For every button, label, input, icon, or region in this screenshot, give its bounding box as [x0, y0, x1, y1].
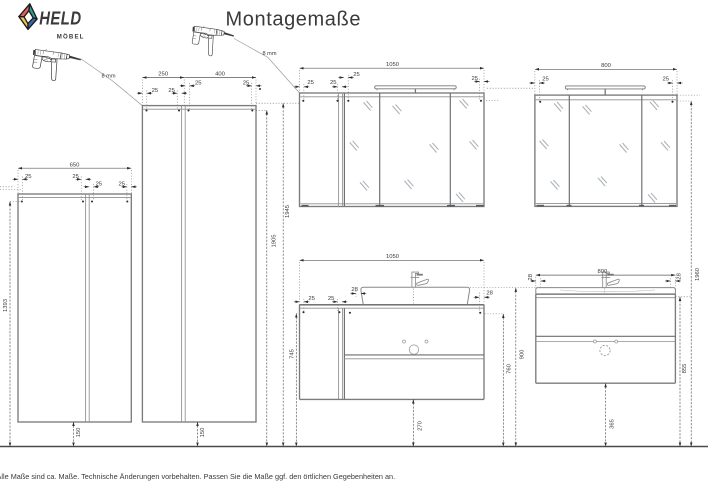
svg-text:25: 25 — [472, 76, 479, 82]
svg-text:25: 25 — [307, 80, 314, 86]
svg-text:1393: 1393 — [3, 298, 9, 312]
svg-text:28: 28 — [677, 272, 683, 279]
svg-text:650: 650 — [70, 162, 81, 168]
svg-text:1945: 1945 — [285, 204, 291, 218]
svg-text:25: 25 — [353, 72, 360, 78]
svg-text:760: 760 — [506, 363, 512, 374]
svg-text:1050: 1050 — [386, 62, 400, 68]
svg-text:1050: 1050 — [386, 254, 400, 260]
svg-text:150: 150 — [76, 427, 82, 438]
svg-text:MÖBEL: MÖBEL — [57, 33, 85, 40]
svg-text:1960: 1960 — [695, 267, 701, 281]
svg-text:365: 365 — [609, 418, 615, 429]
svg-text:25: 25 — [328, 296, 335, 302]
svg-text:25: 25 — [168, 88, 175, 94]
svg-text:25: 25 — [330, 80, 337, 86]
svg-text:250: 250 — [158, 72, 169, 78]
svg-text:25: 25 — [195, 80, 202, 86]
svg-text:25: 25 — [25, 174, 32, 180]
svg-text:HELD: HELD — [39, 8, 81, 29]
svg-text:855: 855 — [682, 363, 688, 374]
svg-text:800: 800 — [601, 63, 612, 69]
svg-text:400: 400 — [215, 72, 226, 78]
svg-text:1905: 1905 — [271, 234, 277, 248]
svg-text:900: 900 — [519, 349, 525, 360]
svg-text:25: 25 — [119, 181, 126, 187]
svg-text:25: 25 — [542, 76, 549, 82]
svg-text:25: 25 — [663, 76, 670, 82]
svg-text:270: 270 — [417, 420, 423, 431]
svg-text:Montagemaße: Montagemaße — [226, 9, 362, 31]
svg-text:745: 745 — [290, 348, 296, 359]
svg-text:150: 150 — [200, 427, 206, 438]
svg-text:800: 800 — [597, 269, 608, 275]
svg-text:28: 28 — [486, 291, 493, 297]
svg-text:25: 25 — [308, 296, 315, 302]
svg-text:25: 25 — [72, 174, 79, 180]
svg-text:8 mm: 8 mm — [102, 74, 116, 80]
svg-text:25: 25 — [152, 88, 159, 94]
svg-text:8 mm: 8 mm — [263, 51, 277, 57]
svg-text:28: 28 — [528, 273, 534, 280]
svg-text:Alle Maße sind ca. Maße. Techn: Alle Maße sind ca. Maße. Technische Ände… — [0, 472, 395, 481]
svg-text:28: 28 — [351, 287, 358, 293]
svg-text:25: 25 — [243, 80, 250, 86]
svg-text:25: 25 — [96, 181, 103, 187]
